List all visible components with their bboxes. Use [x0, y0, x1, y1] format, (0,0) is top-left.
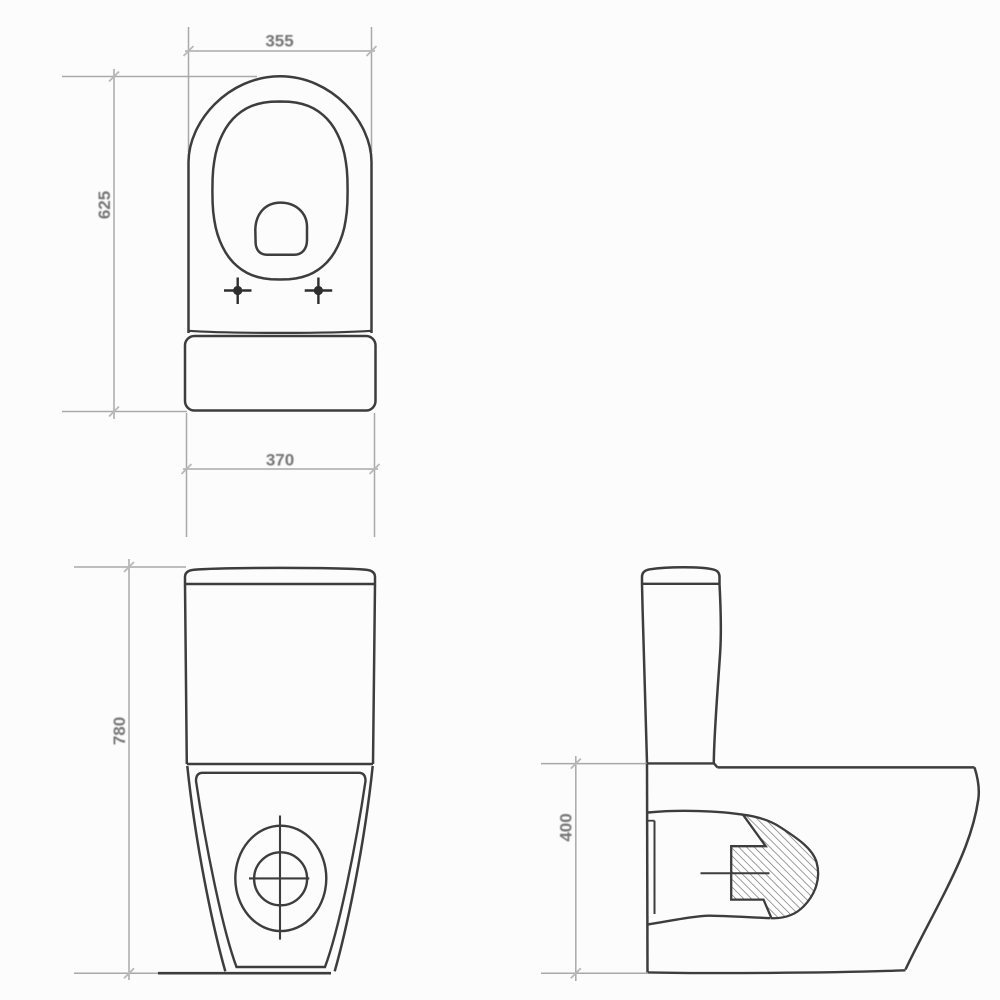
svg-text:370: 370 [266, 451, 294, 470]
svg-text:400: 400 [557, 813, 576, 841]
svg-text:625: 625 [95, 191, 114, 219]
svg-text:780: 780 [110, 717, 129, 745]
svg-text:355: 355 [265, 32, 293, 51]
